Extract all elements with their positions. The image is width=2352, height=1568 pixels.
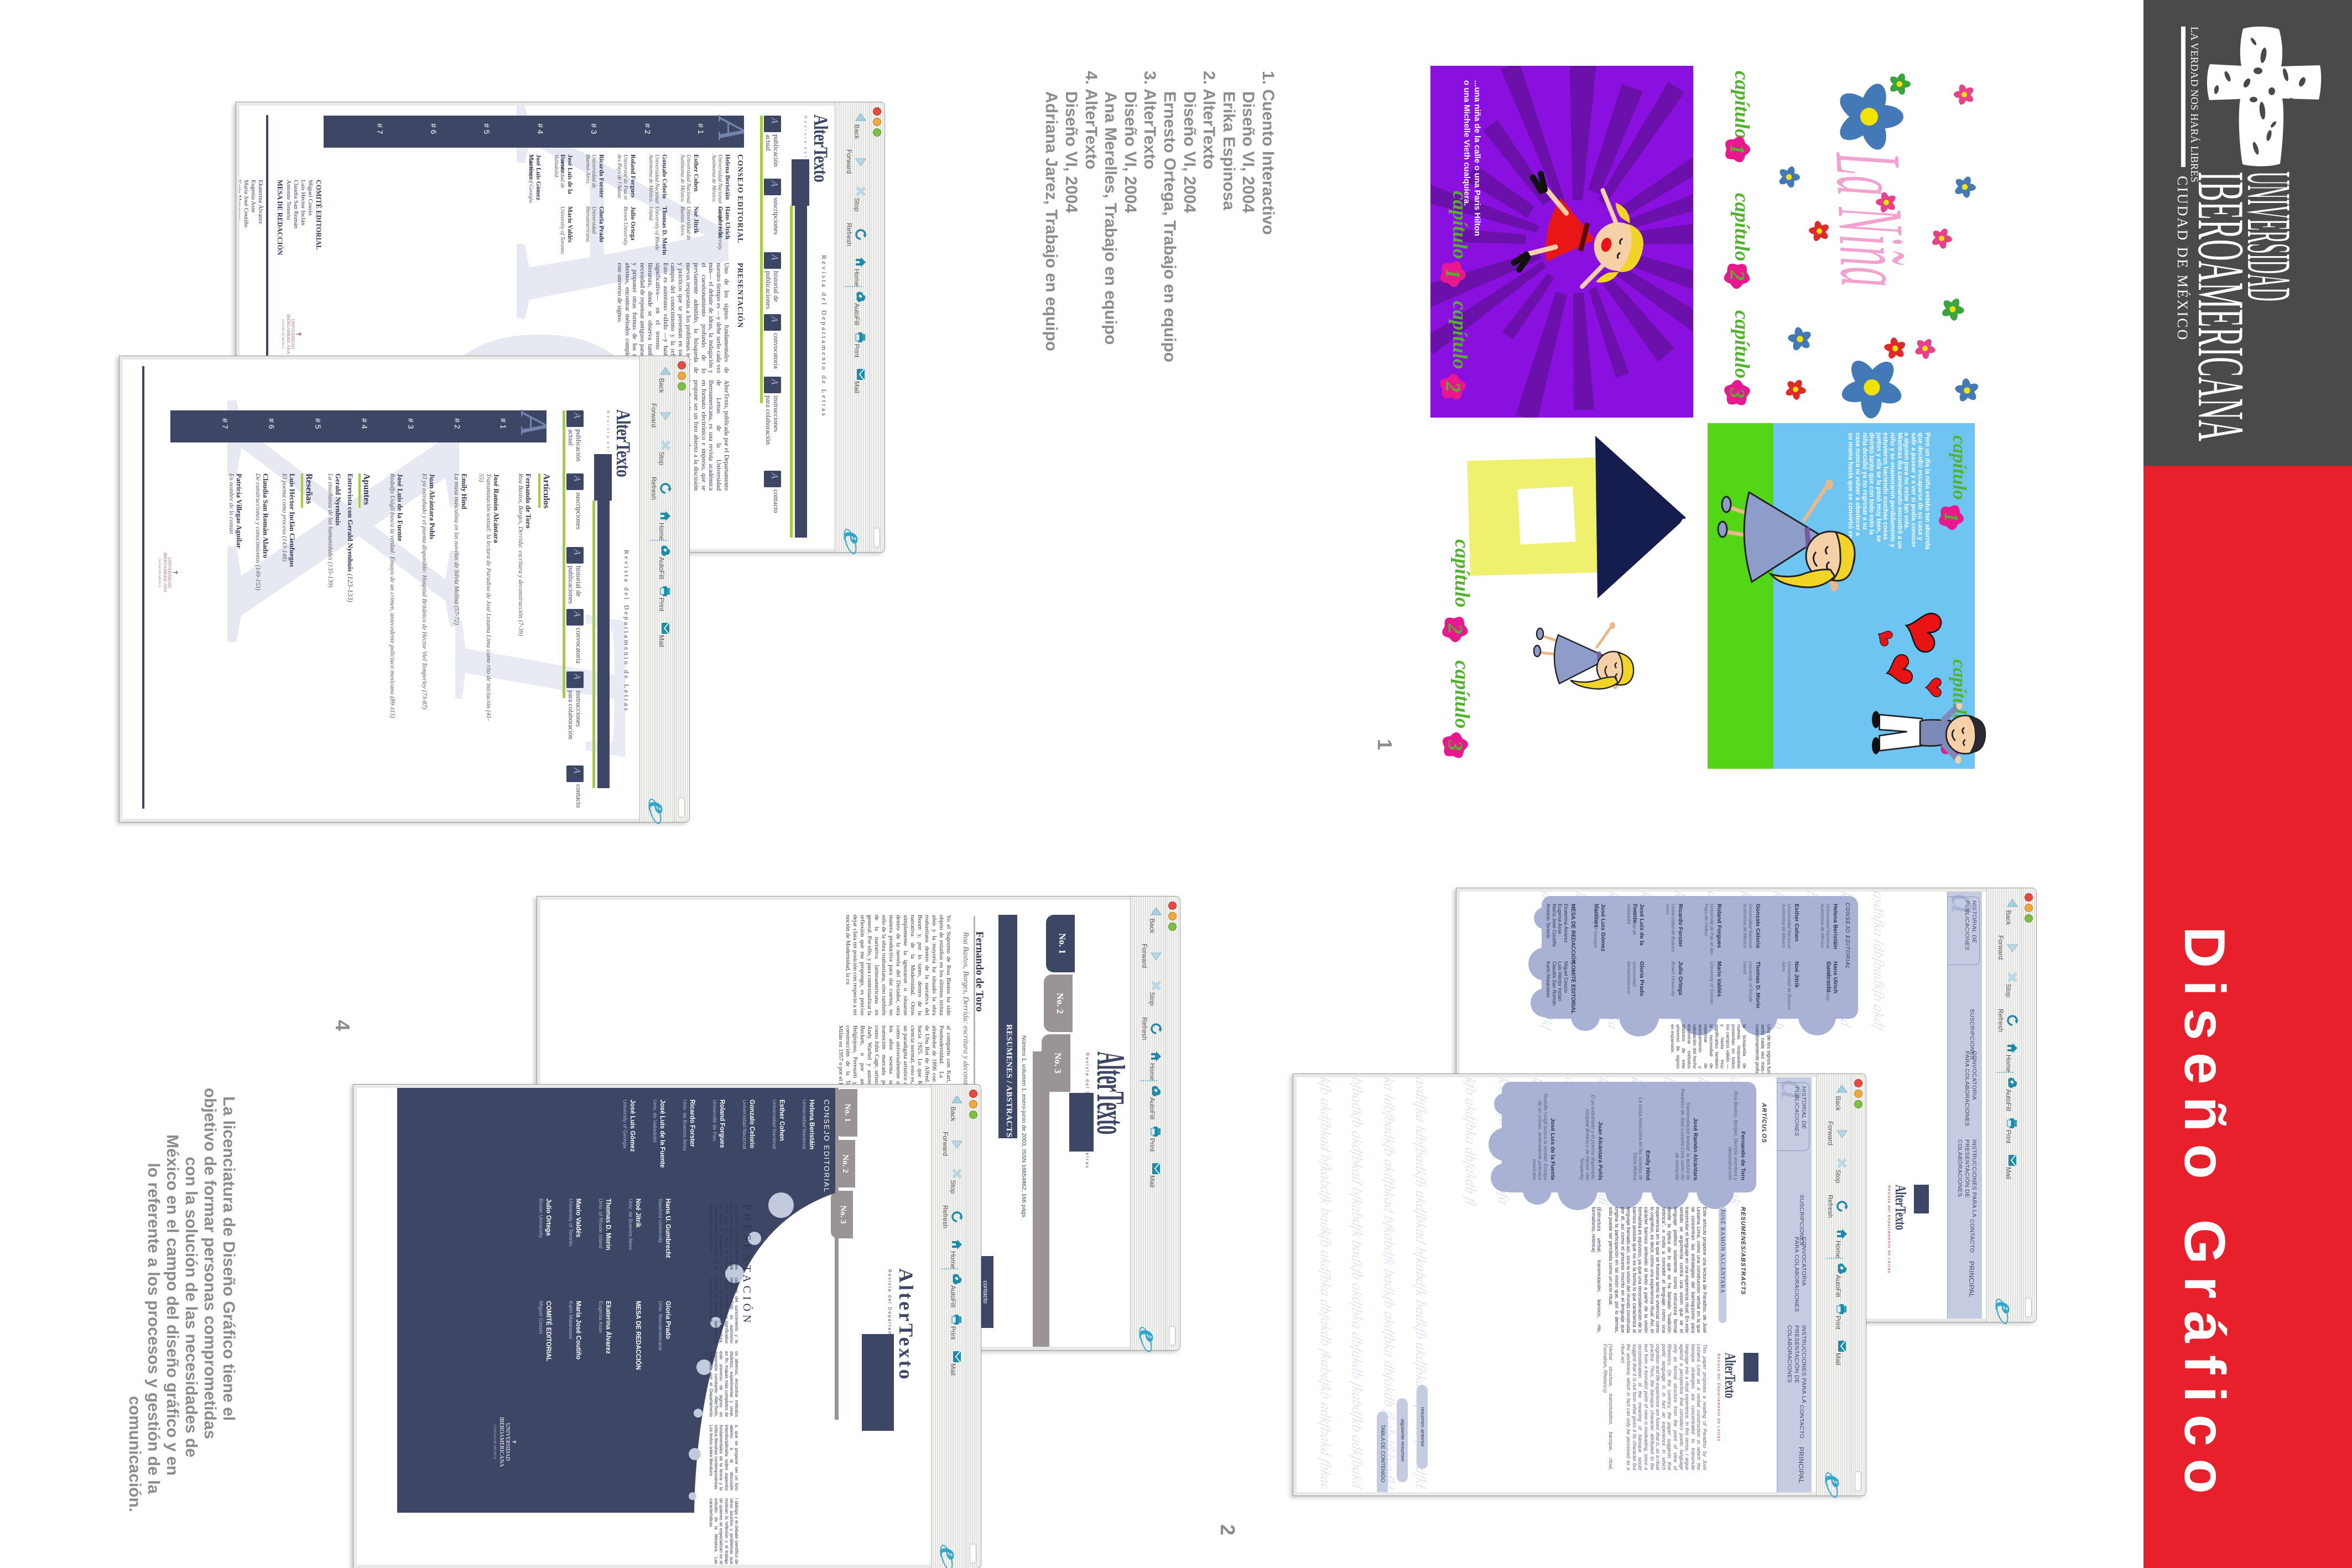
svg-text:3: 3 <box>1443 740 1466 751</box>
svg-text:3: 3 <box>1725 388 1748 399</box>
svg-text:1: 1 <box>1441 269 1464 279</box>
svg-text:2: 2 <box>1725 270 1748 281</box>
svg-text:1: 1 <box>1940 512 1963 522</box>
svg-text:2: 2 <box>1443 623 1466 634</box>
svg-text:2: 2 <box>1441 382 1464 393</box>
svg-text:1: 1 <box>1725 144 1748 155</box>
